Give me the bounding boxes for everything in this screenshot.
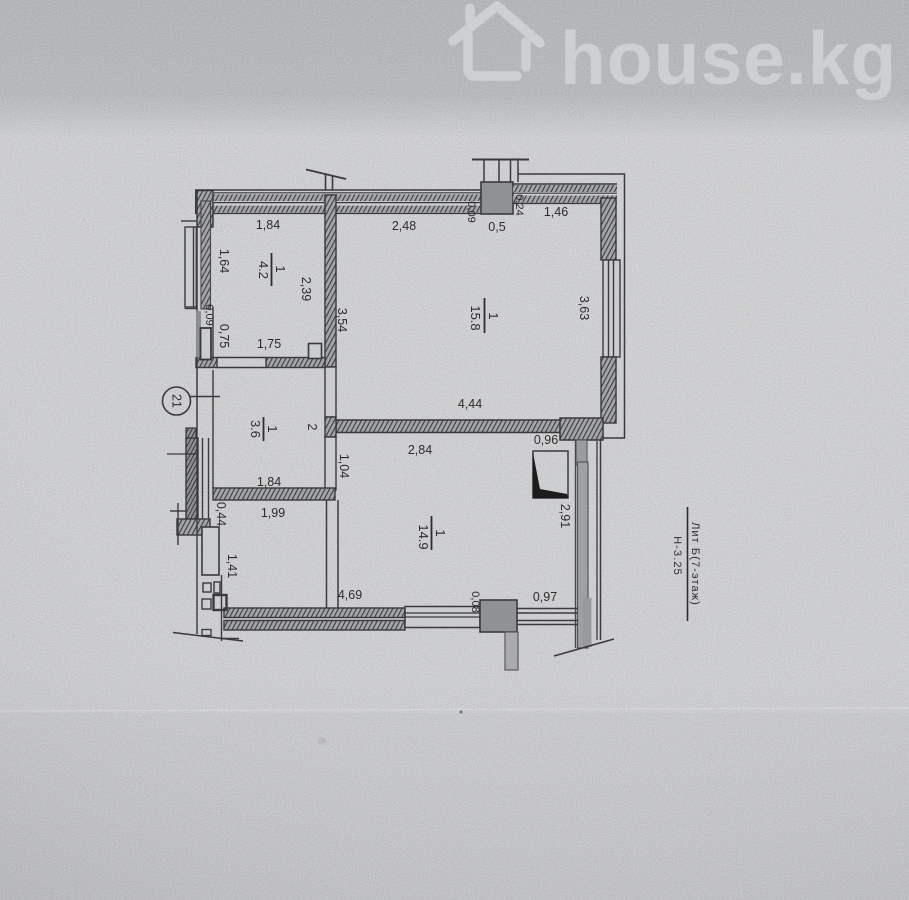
svg-text:4.2: 4.2 <box>256 261 271 279</box>
svg-text:1,46: 1,46 <box>544 205 568 219</box>
svg-text:2: 2 <box>305 424 319 431</box>
svg-text:1,04: 1,04 <box>337 454 351 478</box>
svg-text:1: 1 <box>433 529 448 536</box>
svg-text:2,39: 2,39 <box>299 277 313 301</box>
svg-text:1,84: 1,84 <box>256 218 280 232</box>
svg-text:1: 1 <box>273 265 288 272</box>
svg-text:2,84: 2,84 <box>408 443 432 457</box>
svg-text:house.kg: house.kg <box>560 16 897 100</box>
svg-text:1,99: 1,99 <box>261 506 285 520</box>
svg-text:4,69: 4,69 <box>338 588 362 602</box>
svg-text:3,54: 3,54 <box>335 308 349 332</box>
svg-text:3.6: 3.6 <box>248 420 263 438</box>
svg-text:2,91: 2,91 <box>558 504 572 528</box>
svg-text:Н-3.25: Н-3.25 <box>671 536 683 576</box>
svg-text:1: 1 <box>265 425 280 432</box>
svg-text:0,75: 0,75 <box>217 324 231 348</box>
svg-text:0,09: 0,09 <box>203 304 215 325</box>
svg-text:3,63: 3,63 <box>577 296 591 320</box>
svg-text:15.8: 15.8 <box>468 305 483 330</box>
svg-text:0,09: 0,09 <box>465 201 477 222</box>
svg-text:0,96: 0,96 <box>534 433 558 447</box>
svg-text:Лит Б(7-этаж): Лит Б(7-этаж) <box>689 522 701 606</box>
svg-text:1,64: 1,64 <box>217 249 231 273</box>
svg-text:0,44: 0,44 <box>214 502 228 526</box>
svg-text:21: 21 <box>170 394 184 408</box>
svg-text:14.9: 14.9 <box>416 524 431 549</box>
svg-text:0,5: 0,5 <box>488 220 505 234</box>
svg-text:0,08: 0,08 <box>469 591 481 612</box>
svg-text:0,97: 0,97 <box>533 590 557 604</box>
svg-text:0,24: 0,24 <box>513 194 525 215</box>
svg-text:1,84: 1,84 <box>257 475 281 489</box>
svg-text:2,48: 2,48 <box>392 219 416 233</box>
svg-text:1,41: 1,41 <box>225 554 239 578</box>
svg-text:1: 1 <box>486 312 501 319</box>
svg-text:4,44: 4,44 <box>458 397 482 411</box>
svg-text:1,75: 1,75 <box>257 337 281 351</box>
